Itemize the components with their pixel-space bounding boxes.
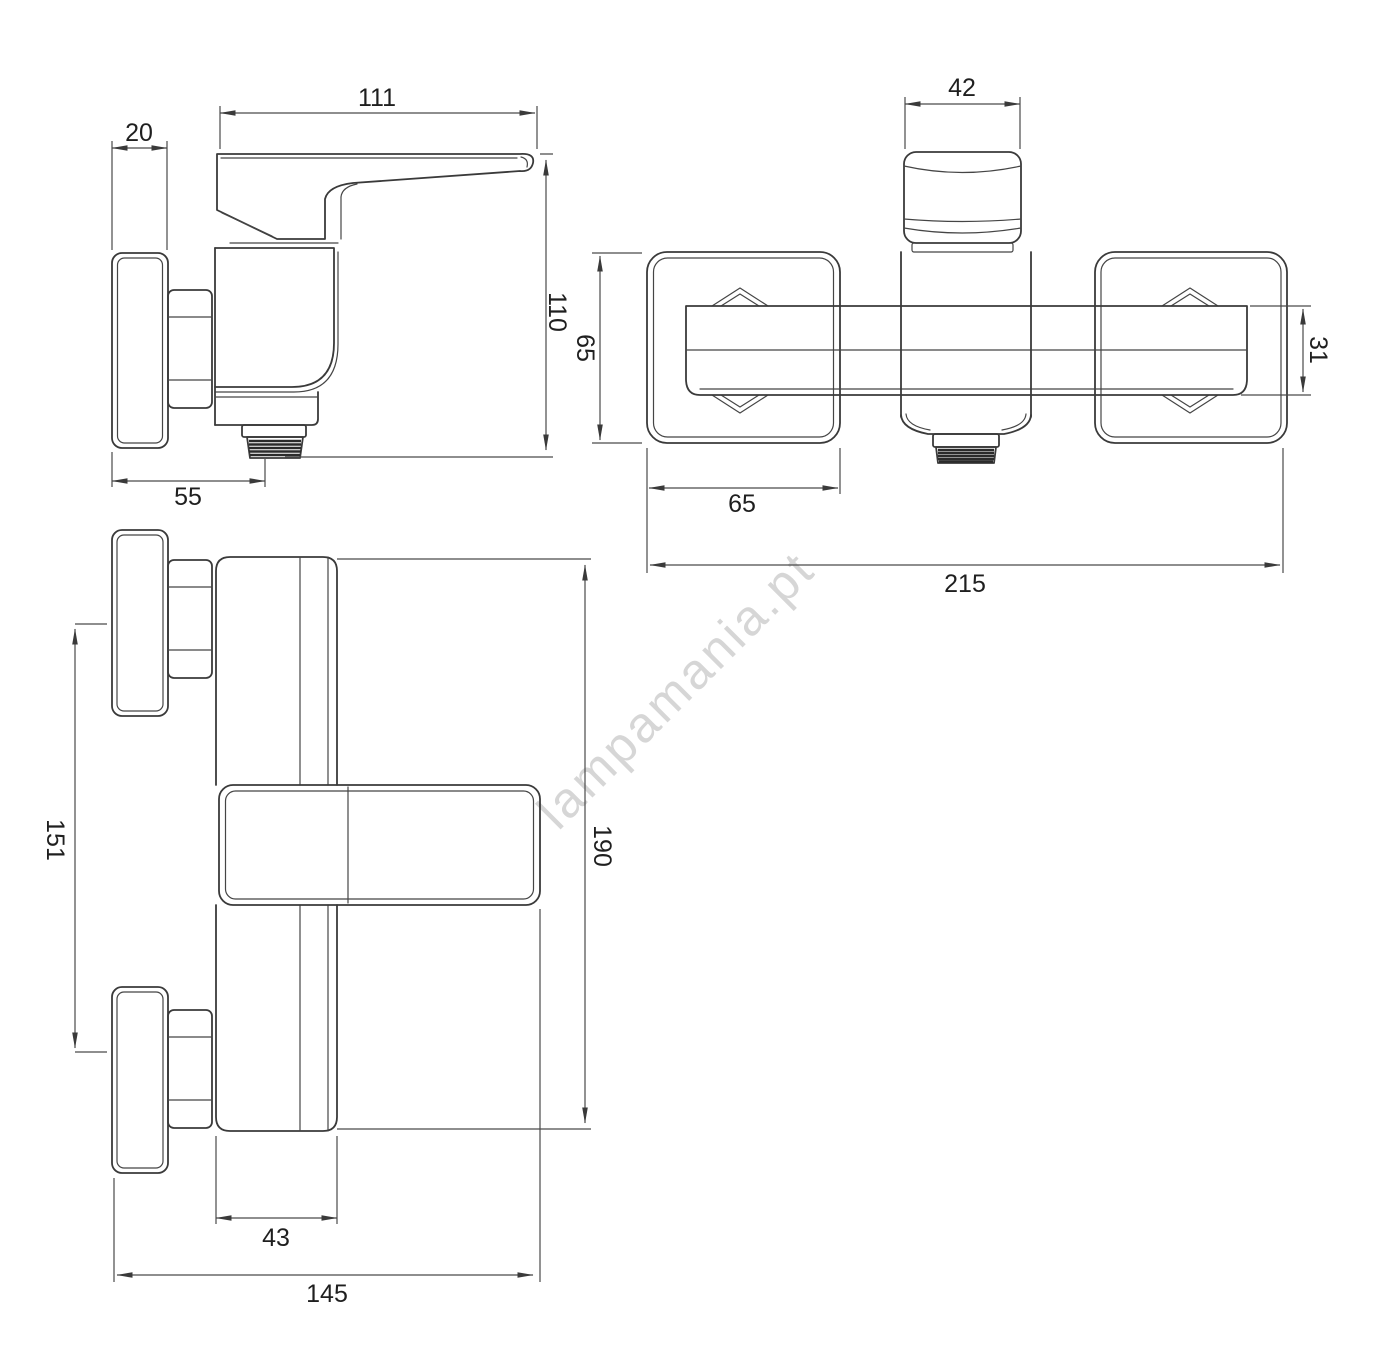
front-body xyxy=(901,252,1031,434)
top-body xyxy=(216,557,337,1131)
front-crossbar xyxy=(686,306,1247,395)
dim-handle-width: 42 xyxy=(948,74,976,102)
top-wall-plate-lower xyxy=(112,987,168,1173)
dim-overall-depth: 190 xyxy=(588,825,616,867)
side-dimensions: 111 20 110 55 xyxy=(112,84,571,511)
top-hex-nut-lower xyxy=(168,1010,212,1128)
dim-connection-spacing: 151 xyxy=(41,819,69,861)
dim-outlet-depth: 55 xyxy=(174,483,202,511)
dim-body-width: 43 xyxy=(262,1224,290,1252)
front-outlet-thread xyxy=(933,434,999,463)
top-wall-plate-upper xyxy=(112,530,168,716)
top-view: 151 190 43 145 xyxy=(41,530,616,1308)
dim-crossbar-height: 31 xyxy=(1304,336,1332,364)
side-view: 111 20 110 55 xyxy=(112,84,571,511)
top-handle xyxy=(219,785,540,905)
front-left-wall-plate xyxy=(647,252,840,443)
drawing-canvas: lampamania.pt xyxy=(0,0,1378,1363)
front-right-wall-plate xyxy=(1095,252,1287,443)
dim-wall-plate-thickness: 20 xyxy=(125,119,153,147)
side-lever-handle xyxy=(217,154,533,239)
front-view: 42 65 31 65 215 xyxy=(571,74,1332,598)
dim-wall-plate-width: 65 xyxy=(728,490,756,518)
side-hex-nut xyxy=(168,290,212,408)
dim-overall-length: 145 xyxy=(306,1280,348,1308)
dim-wall-plate-height: 65 xyxy=(571,334,599,362)
side-wall-plate xyxy=(112,253,168,448)
top-hex-nut-upper xyxy=(168,560,212,678)
side-outlet-thread xyxy=(242,425,306,458)
faucet-technical-drawing: lampamania.pt xyxy=(0,0,1378,1363)
dim-handle-length: 111 xyxy=(358,84,396,112)
front-handle xyxy=(904,152,1021,252)
dim-total-width: 215 xyxy=(944,570,986,598)
side-body xyxy=(215,243,338,425)
dim-total-height: 110 xyxy=(543,292,571,332)
watermark-text: lampamania.pt xyxy=(526,540,825,839)
